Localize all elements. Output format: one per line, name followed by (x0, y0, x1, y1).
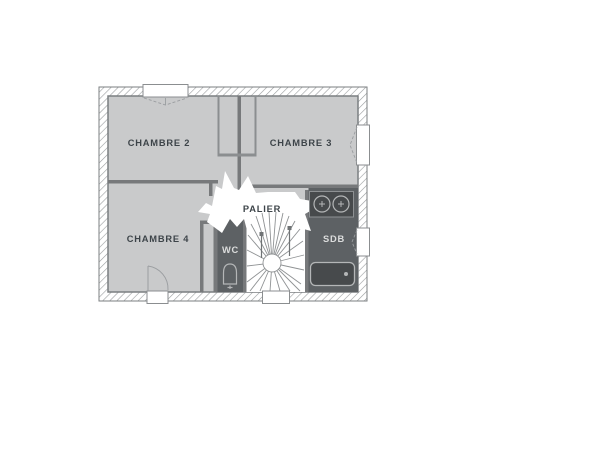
room-label-chambre3: CHAMBRE 3 (270, 138, 332, 148)
floor-plan-svg: CHAMBRE 2 CHAMBRE 3 CHAMBRE 4 PALIER WC … (0, 0, 600, 450)
room-label-chambre2: CHAMBRE 2 (128, 138, 190, 148)
wall-wc-stair (243, 217, 247, 292)
room-label-palier: PALIER (243, 204, 281, 214)
room-label-chambre4: CHAMBRE 4 (127, 234, 189, 244)
wall-ch3-sdb (252, 185, 358, 189)
room-label-sdb: SDB (323, 234, 345, 244)
wall-stub (209, 183, 213, 196)
wall-ch2-ch4 (108, 180, 218, 184)
wall-closet-wc (214, 221, 218, 293)
wall-ch4-right (200, 221, 204, 293)
window-bottom-stairs (263, 291, 290, 304)
floor-plan-page: CHAMBRE 2 CHAMBRE 3 CHAMBRE 4 PALIER WC … (0, 0, 600, 450)
wall-ch2-ch3 (238, 96, 242, 190)
newel-post-icon (260, 232, 264, 236)
room-label-wc: WC (222, 245, 239, 255)
bathtub-icon (311, 263, 355, 286)
stair-winder-arc (263, 254, 281, 272)
newel-post-icon (288, 226, 292, 230)
double-sink-icon (310, 192, 354, 218)
